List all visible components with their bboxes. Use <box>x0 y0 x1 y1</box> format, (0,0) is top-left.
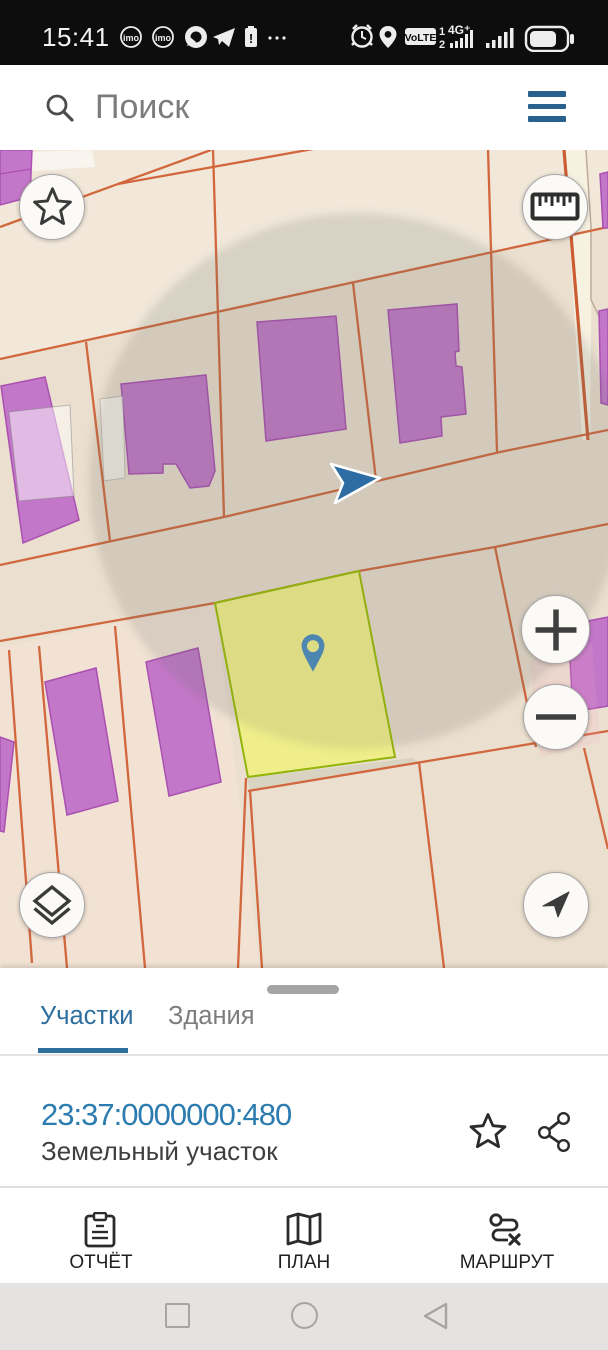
svg-text:imo: imo <box>155 33 172 43</box>
svg-text:2: 2 <box>439 39 445 51</box>
svg-text:1: 1 <box>439 26 445 38</box>
svg-text:VoLTE: VoLTE <box>405 32 437 44</box>
svg-text:imo: imo <box>123 33 140 43</box>
svg-text:!: ! <box>249 31 253 46</box>
